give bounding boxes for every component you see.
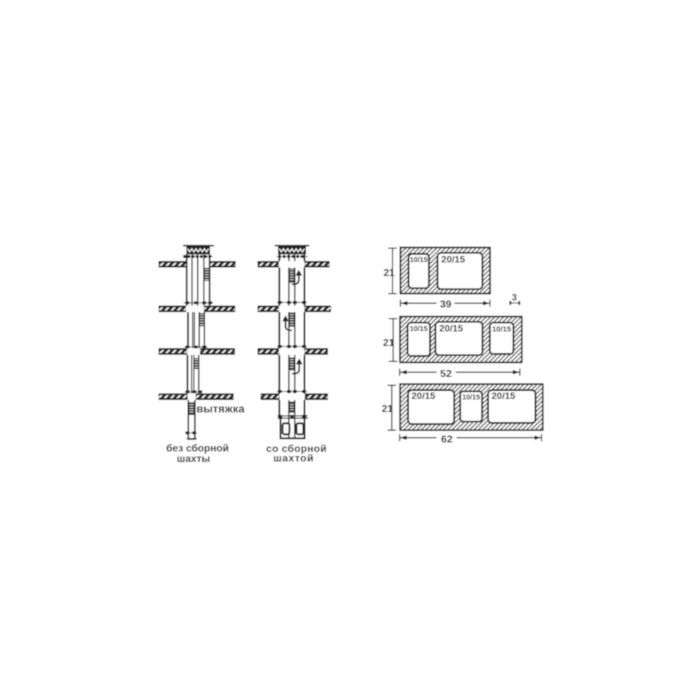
svg-text:10/15: 10/15 [462, 392, 480, 401]
svg-text:20/15: 20/15 [439, 323, 463, 334]
svg-text:10/15: 10/15 [410, 324, 428, 333]
svg-text:52: 52 [440, 368, 452, 380]
svg-text:10/15: 10/15 [492, 324, 512, 333]
svg-text:21: 21 [382, 404, 394, 415]
svg-text:3: 3 [512, 293, 517, 303]
svg-text:20/15: 20/15 [441, 255, 465, 266]
svg-text:вытяжка: вытяжка [196, 404, 245, 416]
svg-text:20/15: 20/15 [412, 391, 436, 402]
svg-text:без сборной: без сборной [166, 443, 229, 455]
svg-text:21: 21 [383, 268, 395, 279]
svg-text:62: 62 [441, 433, 453, 445]
svg-text:шахты: шахты [177, 454, 211, 465]
svg-text:21: 21 [383, 338, 395, 349]
svg-text:20/15: 20/15 [492, 391, 516, 402]
svg-text:39: 39 [440, 298, 452, 310]
svg-text:10/15: 10/15 [410, 255, 428, 264]
svg-text:шахтой: шахтой [273, 454, 314, 465]
